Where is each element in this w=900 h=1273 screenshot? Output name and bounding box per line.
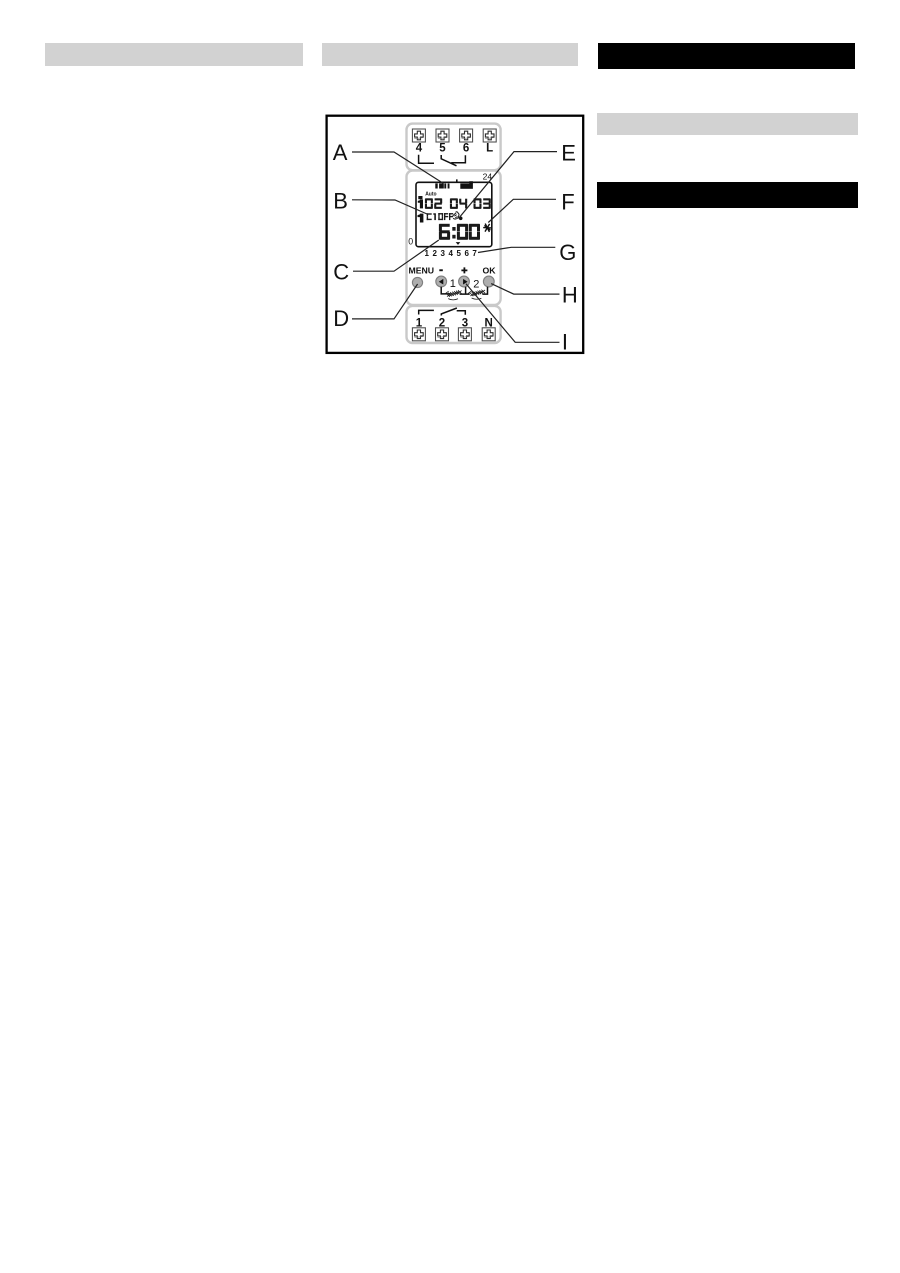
svg-text:A: A: [333, 140, 348, 165]
svg-text:MENU: MENU: [409, 265, 435, 275]
svg-text:3: 3: [440, 249, 445, 258]
svg-text:4: 4: [416, 143, 423, 155]
svg-text:6: 6: [463, 143, 469, 155]
svg-text:G: G: [559, 240, 576, 265]
svg-text:5: 5: [456, 249, 461, 258]
svg-text:C: C: [333, 259, 349, 284]
svg-text:7: 7: [472, 249, 477, 258]
svg-text:2: 2: [432, 249, 437, 258]
svg-text:I: I: [562, 329, 568, 354]
svg-text:H: H: [562, 283, 578, 308]
svg-text:5: 5: [439, 143, 446, 155]
svg-text:F: F: [561, 189, 574, 214]
svg-text:B: B: [333, 188, 348, 213]
svg-text:D: D: [333, 306, 349, 331]
svg-text:L: L: [486, 143, 493, 155]
svg-text:OK: OK: [483, 265, 497, 275]
svg-text:4: 4: [448, 249, 453, 258]
svg-text:6: 6: [464, 249, 469, 258]
svg-text:1: 1: [450, 278, 456, 290]
svg-text:E: E: [561, 141, 576, 166]
svg-text:0: 0: [408, 237, 413, 247]
svg-text:2: 2: [473, 279, 479, 291]
svg-text:Auto: Auto: [425, 191, 436, 197]
